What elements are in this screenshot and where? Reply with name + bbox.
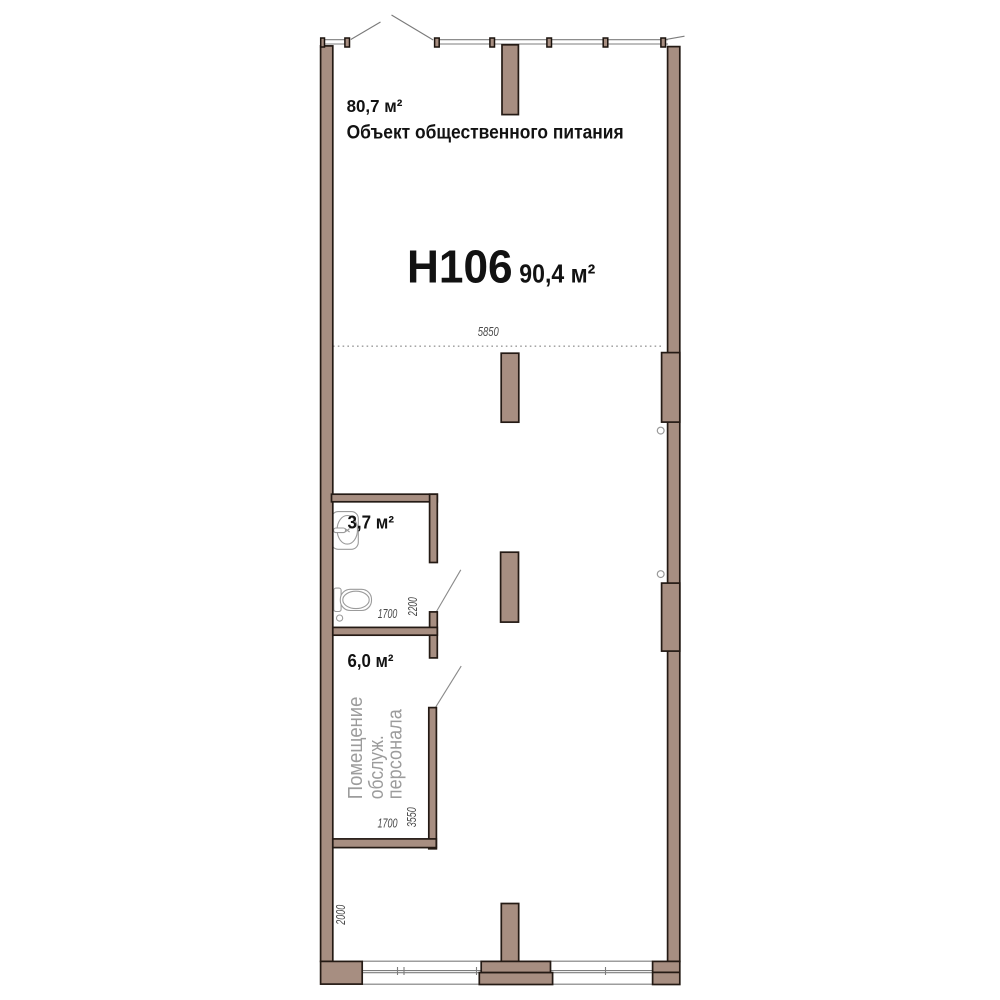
svg-text:80,7 м²: 80,7 м²: [347, 96, 403, 116]
svg-text:1700: 1700: [378, 606, 398, 621]
svg-text:Н106: Н106: [407, 240, 513, 292]
svg-text:Объект общественного питания: Объект общественного питания: [347, 122, 624, 144]
svg-text:3550: 3550: [404, 807, 419, 828]
svg-text:2200: 2200: [405, 597, 420, 617]
svg-text:1700: 1700: [378, 816, 399, 831]
svg-text:2000: 2000: [333, 904, 348, 925]
svg-text:90,4 м²: 90,4 м²: [519, 258, 595, 288]
svg-text:6,0 м²: 6,0 м²: [348, 651, 394, 671]
svg-text:Помещение: Помещение: [345, 697, 367, 800]
svg-text:5850: 5850: [478, 324, 500, 339]
svg-text:3,7 м²: 3,7 м²: [348, 513, 395, 533]
svg-text:персонала: персонала: [385, 708, 407, 799]
